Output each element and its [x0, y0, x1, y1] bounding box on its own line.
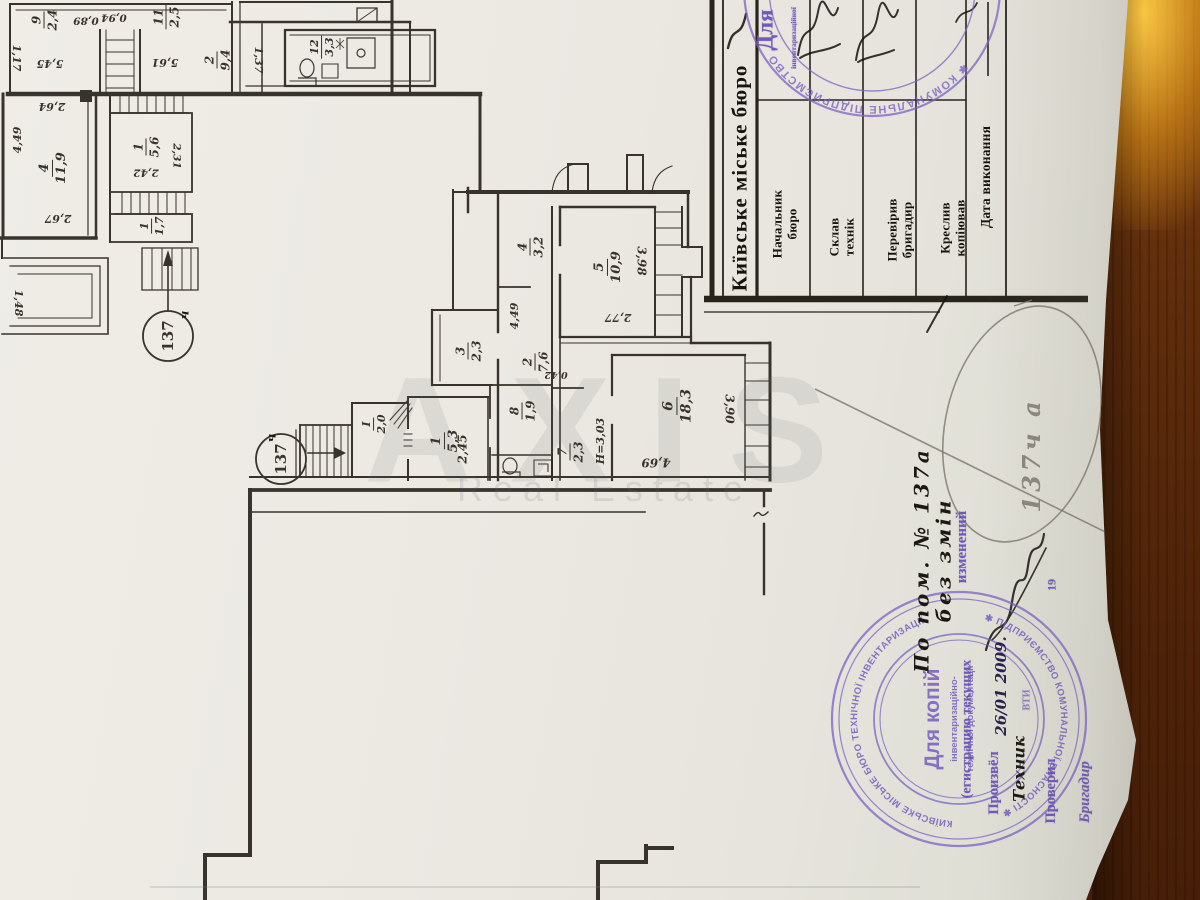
room-1n-label: 15,6 — [120, 137, 161, 158]
dim-1-37: 1,37 — [252, 47, 264, 74]
table-row-verified: Перевірив бригадир — [885, 198, 916, 261]
dim-4-49: 4,49 — [509, 303, 521, 330]
dim-3-90: 3,90 — [723, 394, 736, 423]
dim-3-98: 3,98 — [635, 246, 648, 275]
dim-5-45: 5,45 — [37, 57, 64, 69]
table-row-chief: Начальник бюро — [770, 190, 801, 258]
room-6-label: 618,3 — [646, 389, 693, 423]
room-7-label: 72,3 — [544, 442, 585, 463]
top-stamp-center-text: Для — [754, 9, 779, 50]
room-4-label: 43,2 — [504, 237, 545, 258]
room-8-label: 81,9 — [496, 401, 537, 422]
top-round-stamp: ✱ КОМУНАЛЬНЕ ПІДПРИЄМСТВО ✱ УКРАЇНА — [744, 0, 1000, 116]
dim-0-89: 0,89 — [73, 14, 99, 25]
room-11-label: 112,5 — [140, 5, 181, 30]
dim-4-49-left: 4,49 — [12, 127, 24, 154]
dim-1-17: 1,17 — [10, 45, 22, 72]
unit-circle-2: 137 — [273, 443, 289, 474]
paper-sheet: ✱ КОМУНАЛЬНЕ ПІДПРИЄМСТВО ✱ УКРАЇНА КИЇВ… — [0, 0, 1200, 900]
table-row-compiled: Склав технік — [827, 218, 858, 257]
dim-2-45: 2,45 — [457, 434, 470, 463]
dim-1-48: 1,48 — [12, 290, 24, 317]
dim-2-67: 2,67 — [45, 212, 72, 224]
dim-2-77: 2,77 — [605, 311, 632, 323]
room-4n-label: 411,9 — [24, 152, 68, 184]
unit-circle-2-suffix: ч — [266, 434, 279, 443]
room-5-label: 510,9 — [579, 251, 623, 283]
room-12-label: 123,3 — [297, 35, 335, 58]
shower-icon — [336, 38, 375, 68]
ink-note: По пом. № 137а без змін — [911, 427, 954, 694]
dim-2-64: 2,64 — [39, 100, 66, 112]
room-1-label: 15,3 — [416, 430, 460, 453]
dim-4-69: 4,69 — [641, 456, 670, 469]
bureau-table-title: Київське міське бюро — [728, 65, 753, 292]
dim-0-42: 0,42 — [544, 369, 567, 379]
room-9-label: 92,4 — [18, 10, 59, 31]
dim-0-94: 0,94 — [101, 11, 127, 22]
room-1t-label: 11,7 — [127, 216, 165, 235]
paper-bottom-crease — [150, 886, 920, 888]
form-registration-line: (егистрацию текущих — [959, 660, 974, 799]
top-stamp-side-text: інвентаризаційної — [790, 7, 798, 69]
dim-2-31: 2,31 — [170, 143, 181, 169]
room-2-label: 27,6 — [509, 352, 550, 373]
dim-2-42: 2,42 — [133, 166, 159, 177]
watermark-subtitle: Real Estate — [457, 468, 753, 510]
room-3-label: 32,3 — [442, 341, 483, 362]
unit-circle-1: 137 — [160, 320, 176, 351]
hall-label: І2,0 — [349, 414, 387, 433]
dim-5-61: 5,61 — [152, 56, 179, 68]
ceiling-height-label: Н=3,03 — [595, 418, 607, 464]
form-registration-word: изменений — [954, 511, 970, 584]
room-2c-label: 29,4 — [191, 50, 232, 71]
photographed-floorplan-document: ✱ КОМУНАЛЬНЕ ПІДПРИЄМСТВО ✱ УКРАЇНА КИЇВ… — [0, 0, 1200, 900]
unit-circle-1-suffix: ч — [179, 311, 192, 320]
table-row-drawn: Креслив копіював — [938, 200, 969, 257]
